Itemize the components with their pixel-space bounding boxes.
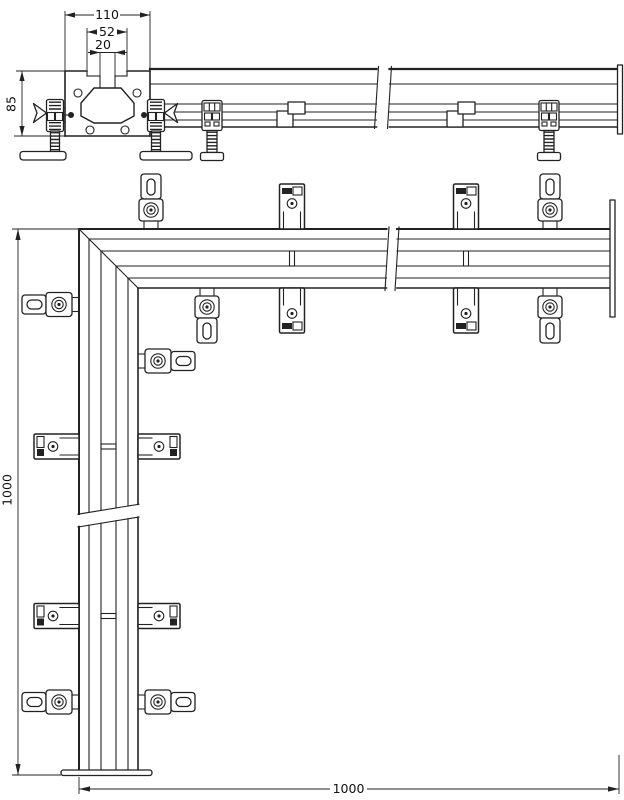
pedestal-mount-clip (138, 349, 195, 373)
screw-hole (74, 89, 82, 97)
pedestal-foot (538, 153, 561, 161)
connector-clip (34, 434, 79, 459)
rail-break (385, 227, 399, 291)
rail-break (375, 67, 392, 129)
wing-nut-icon (34, 104, 47, 123)
adjustable-pedestal (201, 101, 224, 161)
rail-end-cap (61, 770, 152, 776)
channel-connector (101, 444, 116, 449)
technical-drawing: 110 52 20 85 (0, 0, 624, 800)
connector-clip (280, 184, 305, 229)
rail-end-cap (610, 200, 615, 317)
pedestal-mount-clip (538, 174, 562, 229)
connector-clip (138, 604, 180, 629)
connector-clip (34, 604, 79, 629)
adjustable-pedestal (20, 100, 66, 161)
connector-clip (454, 288, 479, 333)
dim-label-110: 110 (95, 7, 119, 22)
screw-hole (86, 126, 94, 134)
pedestal-foot (201, 153, 224, 161)
rail-end-cap (618, 65, 623, 134)
pedestal-mount-clip (195, 288, 219, 343)
dim-label-1000-bottom: 1000 (333, 781, 365, 796)
dim-label-85: 85 (4, 96, 19, 112)
pedestal-foot (140, 152, 192, 161)
corner-miter (79, 229, 138, 288)
profile-cross-section (58, 71, 157, 136)
rail-step-clip (447, 102, 475, 127)
screw-hole (121, 126, 129, 134)
side-screw (141, 112, 147, 118)
plan-view: 1000 1000 (0, 174, 619, 796)
pedestal-mount-clip (22, 690, 79, 714)
rail-step-clip (277, 102, 305, 127)
dimension-1000-bottom: 1000 (79, 755, 619, 796)
adjustable-pedestal (538, 101, 561, 161)
dim-label-1000-left: 1000 (0, 474, 15, 506)
pedestal-mount-clip (138, 690, 195, 714)
pedestal-mount-clip (139, 174, 163, 229)
side-screw (68, 112, 74, 118)
pedestal-mount-clip (538, 288, 562, 343)
pedestal-mount-clip (22, 293, 79, 317)
channel-connector (101, 614, 116, 619)
pedestal-foot (20, 152, 66, 161)
dim-label-20: 20 (95, 37, 111, 52)
elevation-view: 110 52 20 85 (4, 7, 623, 161)
channel-connector (290, 251, 295, 266)
connector-clip (138, 434, 180, 459)
rail-break (78, 504, 139, 527)
dimension-20: 20 (88, 37, 127, 88)
adjustable-pedestal (140, 100, 192, 161)
profile-cavity (81, 88, 134, 123)
screw-hole (133, 89, 141, 97)
channel-connector (464, 251, 469, 266)
connector-clip (280, 288, 305, 333)
connector-clip (454, 184, 479, 229)
